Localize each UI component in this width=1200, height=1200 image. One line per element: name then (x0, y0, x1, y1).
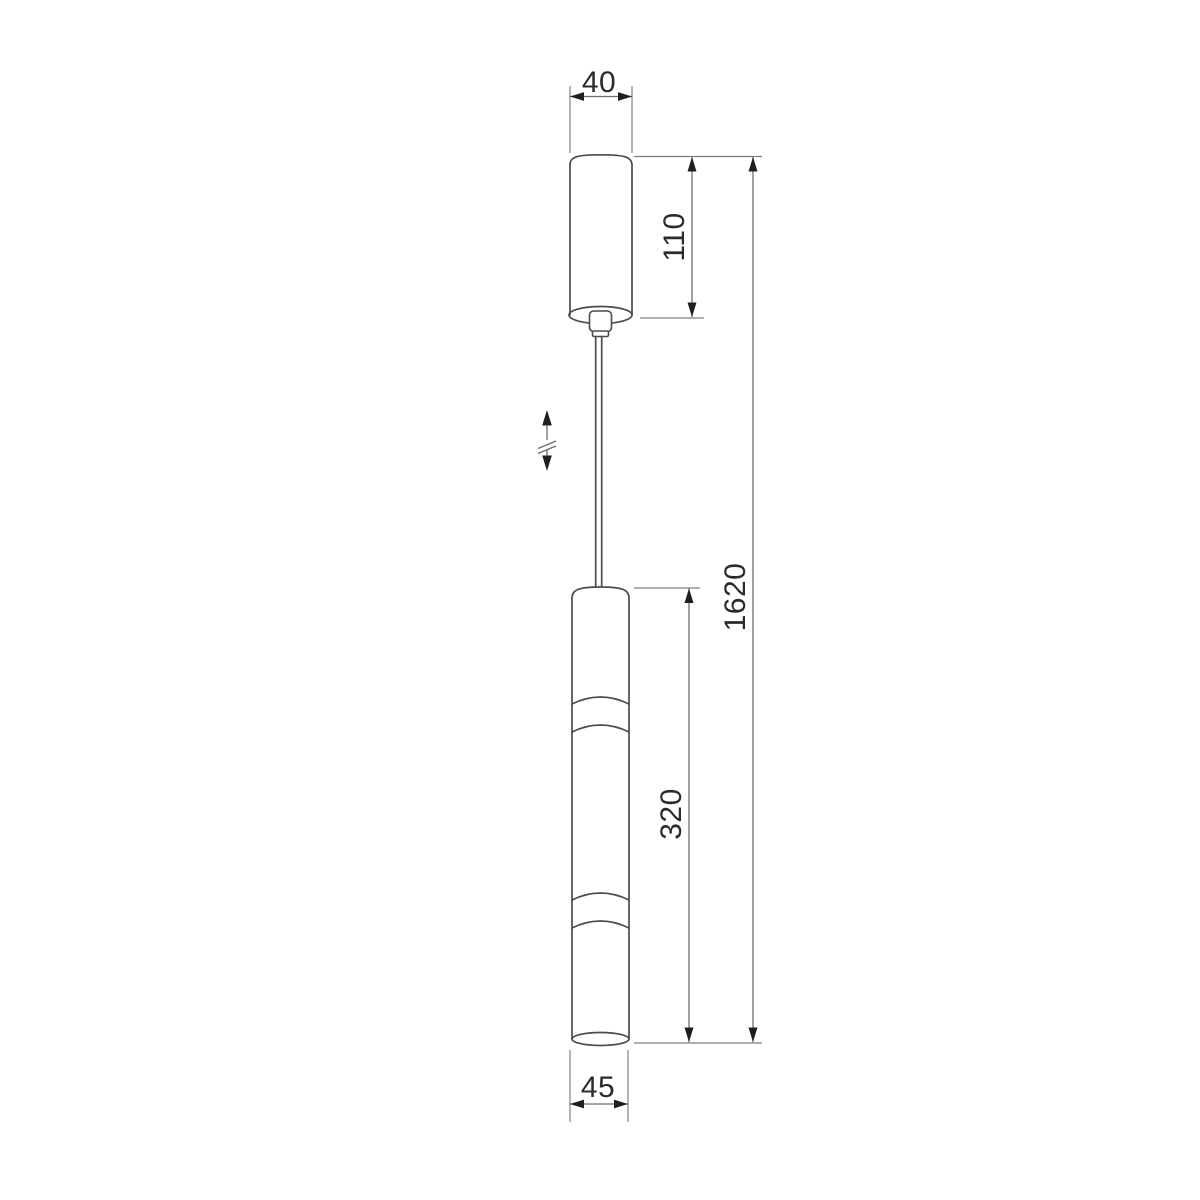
dim-label-canopy-width: 40 (582, 66, 616, 99)
dim-label-body-width: 45 (581, 1071, 615, 1104)
dim-body-width: 45 (570, 1050, 628, 1122)
dim-body-length: 320 (634, 588, 762, 1043)
arrowhead-up (685, 589, 694, 604)
arrowhead-right (618, 92, 632, 101)
adjust-arrow-up-head (542, 410, 552, 426)
cable-gland-body (590, 311, 612, 332)
body-bottom-ellipse (572, 1033, 629, 1046)
arrowhead-down (685, 1028, 694, 1043)
lamp-body (572, 587, 629, 1046)
body-seam-arc-1 (572, 697, 629, 704)
arrowhead-up (749, 157, 758, 172)
body-seam-arc-4 (572, 921, 629, 928)
arrowhead-down (749, 1028, 758, 1043)
body-seam-arc-2 (572, 725, 629, 732)
dim-canopy-width: 40 (570, 66, 632, 153)
adjust-arrow-down-head (542, 456, 552, 472)
height-adjustment-icon (538, 410, 556, 471)
arrowhead-up (688, 157, 697, 172)
cable-gland-nub (593, 331, 609, 337)
dim-overall-length: 1620 (719, 157, 758, 1042)
pendant-lamp-drawing: 40 110 1620 320 (0, 0, 1200, 1200)
dim-label-overall-length: 1620 (719, 563, 752, 632)
body-outline (572, 587, 629, 1039)
canopy-outline (570, 155, 632, 315)
arrowhead-right (614, 1100, 628, 1109)
dim-label-body-length: 320 (655, 788, 688, 840)
arrowhead-down (688, 303, 697, 318)
ceiling-canopy (569, 155, 632, 337)
body-seam-arc-3 (572, 893, 629, 900)
dim-canopy-height: 110 (634, 157, 762, 319)
dim-label-canopy-height: 110 (658, 212, 691, 261)
technical-drawing-canvas: 40 110 1620 320 (0, 0, 1200, 1200)
suspension-cable (596, 337, 602, 587)
